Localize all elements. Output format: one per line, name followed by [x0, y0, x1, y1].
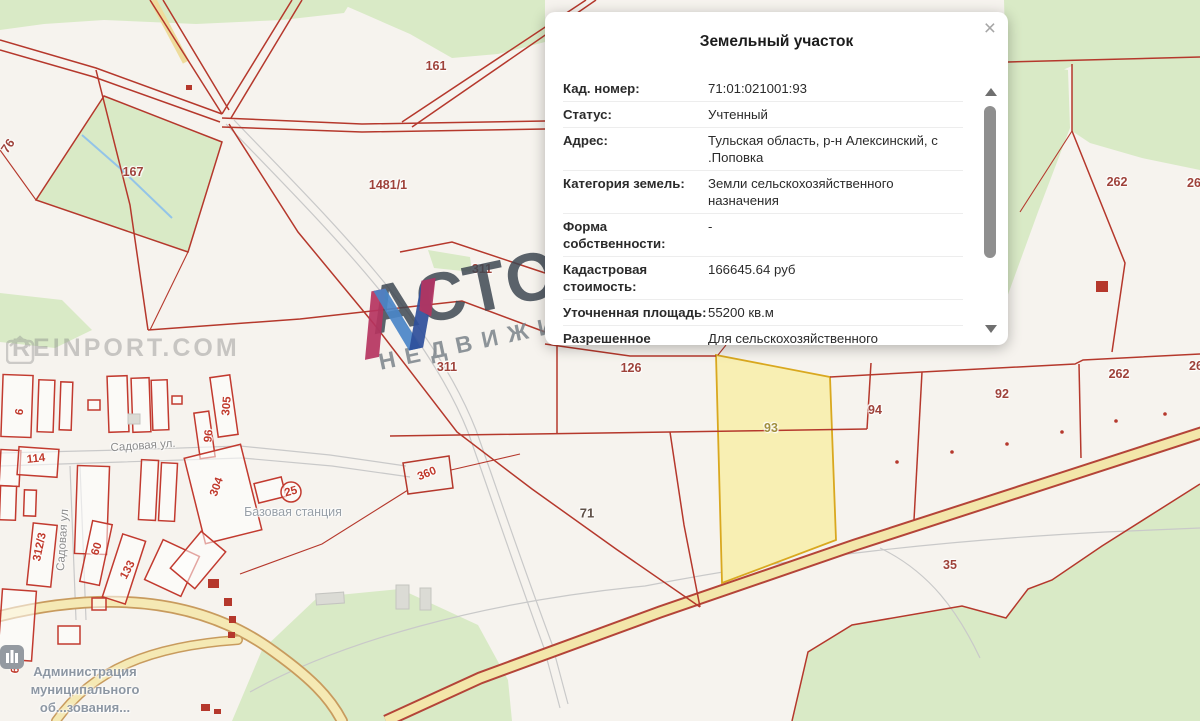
highlighted-parcel-93[interactable] [716, 355, 836, 583]
field-value: Тульская область, р-н Алексинский, с .По… [708, 132, 963, 166]
scroll-thumb[interactable] [984, 106, 996, 258]
field-label: Уточненная площадь: [563, 304, 708, 321]
popup-rows: Кад. номер:71:01:021001:93Статус:Учтенны… [563, 76, 963, 345]
close-icon[interactable]: × [984, 18, 996, 39]
popup-scrollbar[interactable] [983, 84, 997, 337]
popup-row: Адрес:Тульская область, р-н Алексинский,… [563, 128, 963, 171]
popup-row: Форма собственности:- [563, 214, 963, 257]
map-canvas[interactable]: 1611671481/17631131112626226262269294359… [0, 0, 1200, 721]
field-label: Адрес: [563, 132, 708, 166]
field-label: Кадастровая стоимость: [563, 261, 708, 295]
field-label: Статус: [563, 106, 708, 123]
scroll-up-icon[interactable] [985, 88, 997, 96]
field-value: 166645.64 руб [708, 261, 963, 295]
field-value: - [708, 218, 963, 252]
field-value: Земли сельскохозяйственного назначения [708, 175, 963, 209]
field-label: Кад. номер: [563, 80, 708, 97]
field-value: Для сельскохозяйственного [708, 330, 963, 345]
parcel-info-popup: × Земельный участок Кад. номер:71:01:021… [545, 12, 1008, 345]
popup-title: Земельный участок [545, 33, 1008, 51]
popup-row: Кадастровая стоимость:166645.64 руб [563, 257, 963, 300]
field-label: Форма собственности: [563, 218, 708, 252]
field-label: Категория земель: [563, 175, 708, 209]
field-value: 55200 кв.м [708, 304, 963, 321]
popup-row: Статус:Учтенный [563, 102, 963, 128]
popup-row: Категория земель:Земли сельскохозяйствен… [563, 171, 963, 214]
popup-row: Кад. номер:71:01:021001:93 [563, 76, 963, 102]
field-value: 71:01:021001:93 [708, 80, 963, 97]
scroll-down-icon[interactable] [985, 325, 997, 333]
popup-row: РазрешенноеДля сельскохозяйственного [563, 326, 963, 345]
field-value: Учтенный [708, 106, 963, 123]
field-label: Разрешенное [563, 330, 708, 345]
popup-row: Уточненная площадь:55200 кв.м [563, 300, 963, 326]
